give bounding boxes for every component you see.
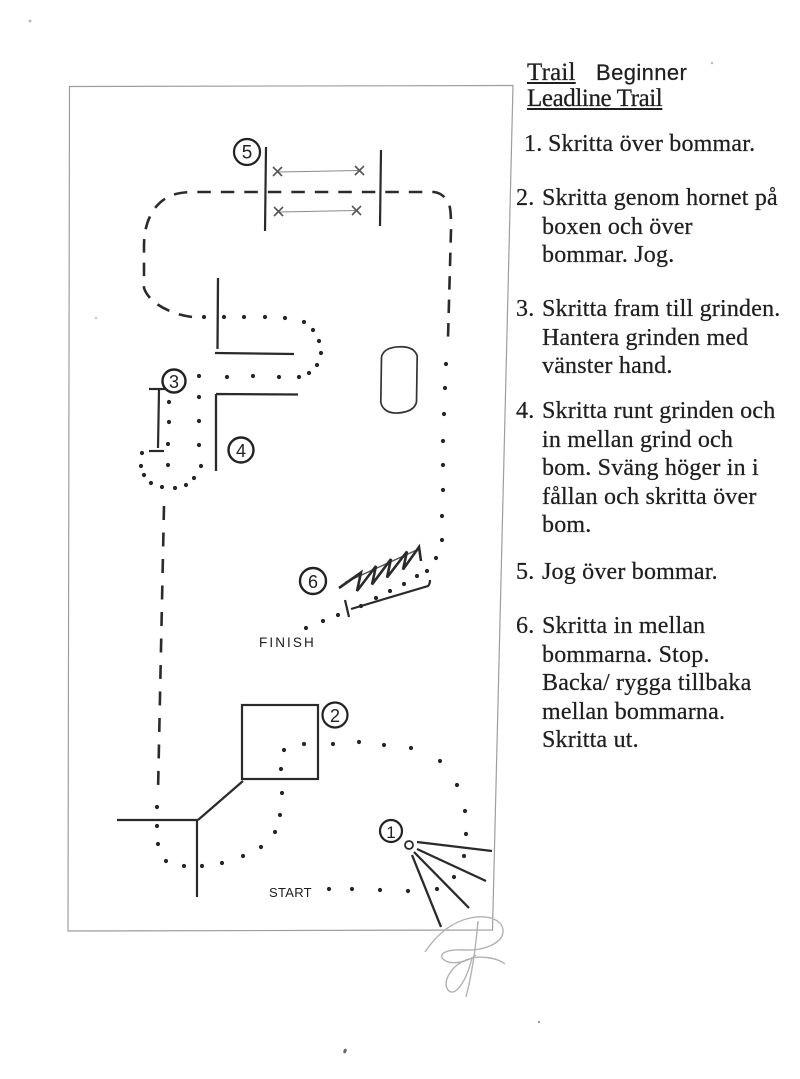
svg-text:START: START bbox=[269, 885, 312, 900]
svg-text:5: 5 bbox=[242, 143, 253, 164]
svg-text:6: 6 bbox=[308, 572, 318, 592]
svg-text:2: 2 bbox=[330, 706, 340, 726]
svg-text:3: 3 bbox=[169, 372, 179, 392]
svg-text:1: 1 bbox=[386, 823, 395, 842]
svg-text:FINISH: FINISH bbox=[259, 635, 316, 650]
svg-text:4: 4 bbox=[236, 441, 246, 461]
